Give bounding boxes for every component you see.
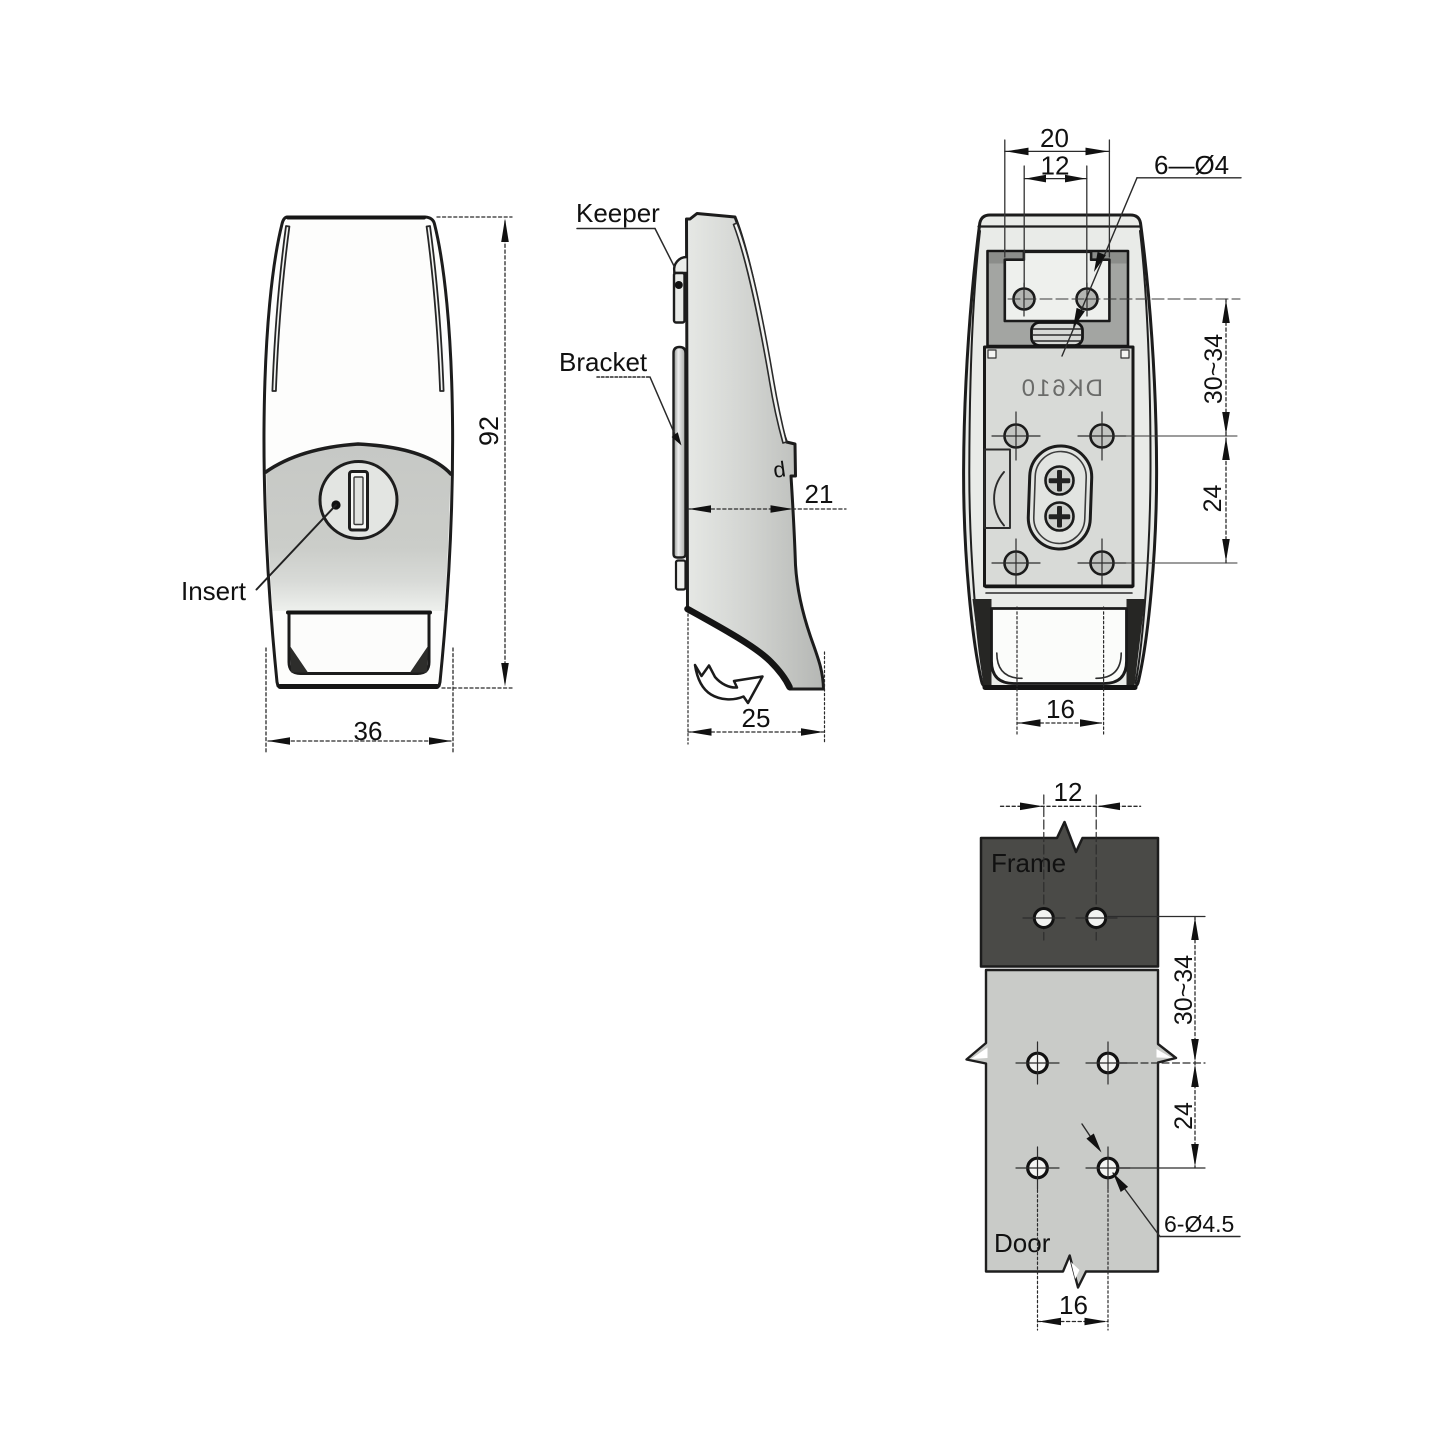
svg-text:24: 24 (1199, 485, 1227, 513)
svg-text:21: 21 (805, 479, 834, 509)
svg-text:12: 12 (1054, 777, 1083, 807)
svg-text:Door: Door (994, 1228, 1051, 1258)
svg-text:Bracket: Bracket (559, 347, 648, 377)
svg-text:36: 36 (354, 716, 383, 746)
svg-text:16: 16 (1059, 1290, 1088, 1320)
svg-text:30~34: 30~34 (1170, 955, 1198, 1025)
svg-text:92: 92 (474, 416, 504, 446)
svg-text:6-Ø4.5: 6-Ø4.5 (1164, 1211, 1234, 1237)
svg-text:12: 12 (1041, 151, 1070, 181)
svg-text:16: 16 (1046, 694, 1075, 724)
svg-text:25: 25 (742, 703, 771, 733)
svg-text:20: 20 (1040, 123, 1069, 153)
svg-text:Frame: Frame (991, 848, 1066, 878)
svg-text:24: 24 (1170, 1102, 1198, 1130)
svg-text:DK610: DK610 (1020, 375, 1103, 402)
svg-text:30~34: 30~34 (1200, 334, 1228, 404)
svg-text:Keeper: Keeper (576, 198, 660, 228)
svg-text:6—Ø4: 6—Ø4 (1154, 150, 1229, 180)
svg-text:Insert: Insert (181, 576, 247, 606)
